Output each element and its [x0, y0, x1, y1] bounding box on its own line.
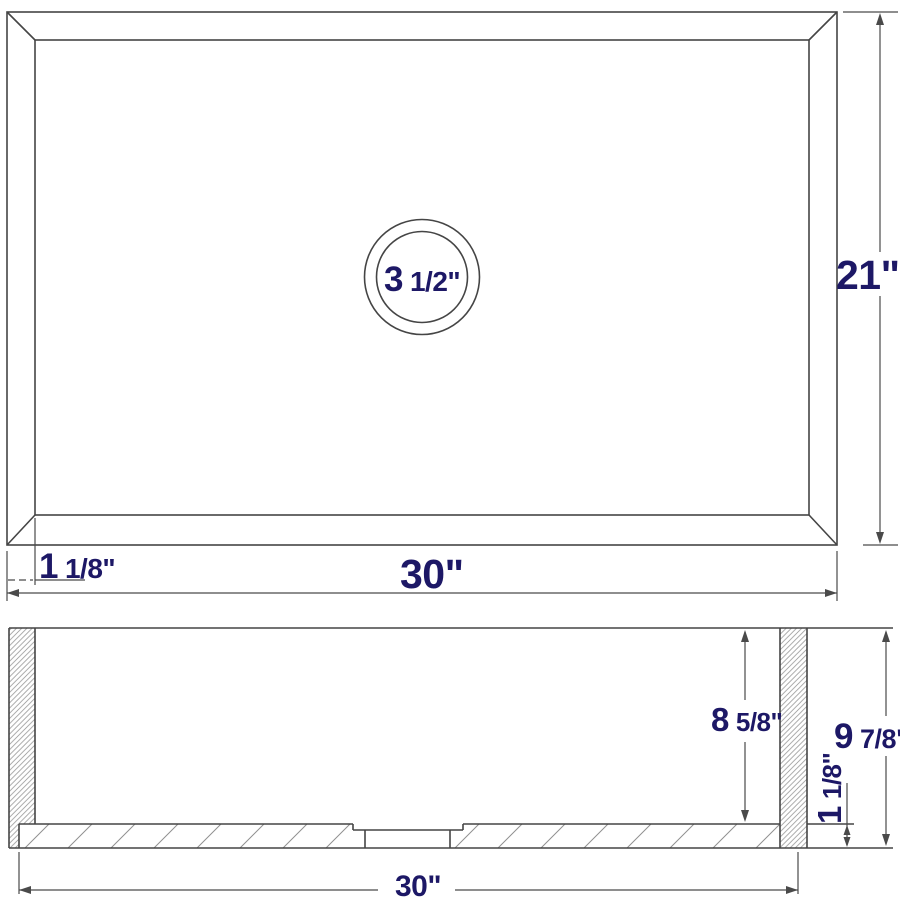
plan-rim-label: 11/8": [39, 547, 115, 586]
plan-rim-whole: 1: [39, 547, 58, 586]
plan-rim-fraction: 1/8": [65, 553, 115, 584]
plan-height-label: 21": [836, 252, 900, 298]
section-outlines: [9, 628, 893, 848]
plan-width-dimension: 30": [7, 551, 837, 601]
drain-opening-mask: [365, 830, 450, 848]
drain-size-label: 31/2": [384, 260, 460, 299]
drain-size-whole: 3: [384, 260, 403, 299]
section-view: 85/8" 97/8" 11/8" 30": [9, 628, 900, 900]
overall-height-label: 97/8": [834, 717, 900, 756]
plan-rim-dimension: 11/8": [8, 518, 115, 586]
interior-depth-fraction: 5/8": [736, 707, 782, 737]
interior-depth-whole: 8: [711, 701, 729, 738]
drawing-canvas: 31/2" 21" 30" 11/8": [0, 0, 900, 900]
base-thickness-dimension: 11/8": [811, 753, 851, 847]
plan-view: 31/2" 21" 30" 11/8": [7, 12, 900, 601]
section-width-dimension: 30": [19, 852, 798, 900]
drain-recess-lip-mask: [353, 823, 463, 830]
section-right-wall-hatch: [780, 628, 807, 848]
overall-height-fraction: 7/8": [860, 724, 900, 754]
interior-depth-dimension: 85/8": [711, 630, 782, 822]
section-left-wall-hatch: [9, 628, 35, 848]
base-thickness-label: 11/8": [811, 753, 848, 824]
plan-width-label: 30": [400, 551, 464, 597]
drain-size-fraction: 1/2": [410, 266, 460, 297]
sink-technical-drawing: 31/2" 21" 30" 11/8": [0, 0, 900, 900]
overall-height-whole: 9: [834, 717, 853, 756]
base-thickness-whole: 1: [811, 806, 848, 824]
section-width-label: 30": [395, 870, 441, 900]
interior-depth-label: 85/8": [711, 701, 782, 738]
base-thickness-fraction: 1/8": [817, 753, 847, 799]
plan-height-dimension: 21": [836, 12, 900, 545]
